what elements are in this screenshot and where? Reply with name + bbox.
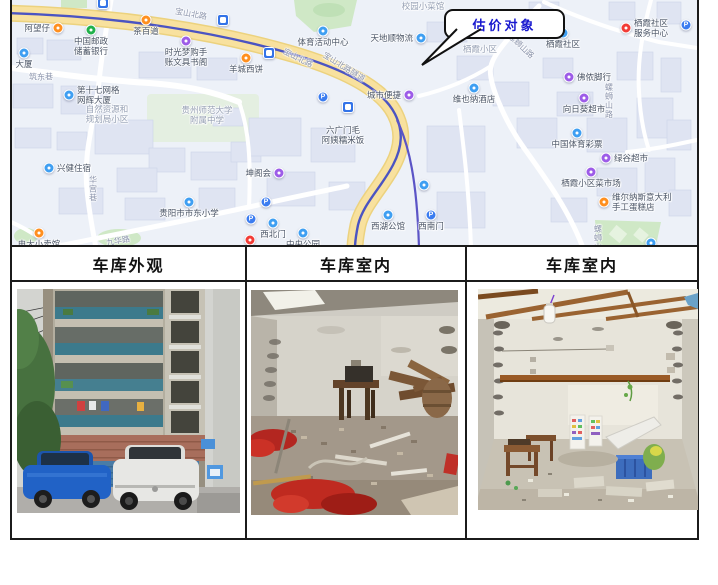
road-label: 九华路 (105, 233, 131, 245)
callout-arrow (411, 28, 491, 73)
table-border-bottom (10, 538, 699, 540)
metro-station-icon (97, 0, 109, 9)
road-label: 华宫巷 (88, 176, 99, 203)
poi-marker-icon (646, 238, 657, 246)
map-poi-label: 绿谷超市 (614, 153, 648, 163)
poi-marker-icon (404, 90, 415, 101)
photo-garage-exterior (17, 289, 240, 513)
poi-marker-icon (318, 26, 329, 37)
map-poi-label: 兴健住宿 (57, 163, 91, 173)
table-border-header-bottom (10, 280, 699, 282)
poi-marker-icon (34, 228, 45, 239)
map-poi-label: 六广门毛阿姨糯米饭 (322, 125, 365, 145)
metro-station-icon (217, 14, 229, 26)
poi-marker-icon (64, 90, 75, 101)
map-poi-label: 中国邮政储蓄银行 (74, 36, 108, 56)
garage-interior-2-graphic (478, 289, 698, 510)
poi-marker-icon (469, 83, 480, 94)
map-poi-label: 城市便捷 (367, 90, 401, 100)
parking-icon: P (681, 20, 692, 31)
map-poi-label: 西南门 (418, 221, 444, 231)
header-garage-interior-2: 车库室内 (467, 247, 697, 280)
map-poi-label: 坤阁会 (245, 168, 271, 178)
map-poi-label: 天地顺物流 (370, 33, 413, 43)
garage-interior-1-graphic (251, 290, 458, 515)
poi-marker-icon (184, 197, 195, 208)
poi-marker-icon (19, 48, 30, 59)
road-label: 宝山北路 (281, 46, 315, 70)
map-poi-label: 茶百道 (133, 26, 159, 36)
road-label: 螺蛳山 (593, 225, 604, 246)
metro-station-icon (342, 101, 354, 113)
poi-marker-icon (141, 15, 152, 26)
table-col-separator-1 (245, 245, 247, 540)
road-label: 宝山北路 (174, 6, 207, 22)
road-label: 螺蛳山路 (604, 83, 615, 119)
parking-icon: P (246, 214, 257, 225)
map-poi-label: 羊城西饼 (229, 64, 263, 74)
map-poi-label: 第十七网格网辉大厦 (77, 85, 120, 105)
poi-marker-icon (268, 218, 279, 229)
map-poi-label: 贵州师范大学附属中学 (181, 105, 232, 125)
poi-marker-icon (586, 167, 597, 178)
poi-marker-icon (383, 210, 394, 221)
map-poi-label: 自然资源和规划局小区 (86, 104, 129, 124)
poi-marker-icon (274, 168, 285, 179)
photo-garage-interior-1 (251, 290, 458, 515)
table-col-separator-2 (465, 245, 467, 540)
poi-marker-icon (53, 23, 64, 34)
metro-station-icon (263, 47, 275, 59)
poi-marker-icon (599, 197, 610, 208)
map-poi-label: 西北门 (260, 229, 286, 239)
map-poi-label: 贵阳市市东小学 (159, 208, 219, 218)
map-poi-label: 向日葵超市 (563, 104, 606, 114)
map-poi-label: 校园小菜馆 (402, 1, 445, 11)
parking-icon: P (261, 197, 272, 208)
map-poi-label: 栖霞小区菜市场 (561, 178, 621, 188)
poi-marker-icon (579, 93, 590, 104)
header-garage-interior-1: 车库室内 (247, 247, 465, 280)
poi-marker-icon (572, 128, 583, 139)
road-label: 宝山北路隧道 (321, 50, 368, 85)
map-poi-label: 佛侬脚行 (577, 72, 611, 82)
map-poi-label: 体育活动中心 (297, 37, 348, 47)
poi-marker-icon (245, 235, 256, 246)
map-poi-label: 大厦 (15, 59, 32, 69)
map-poi-label: 栖霞社区服务中心 (634, 18, 668, 38)
map-poi-label: 维尔纳斯意大利手工蛋糕店 (612, 192, 672, 212)
map-poi-label: 时光梦购手账文具书阁 (165, 47, 208, 67)
poi-marker-icon (44, 163, 55, 174)
map-poi-layer: 阿望仔中国邮政储蓄银行茶百道时光梦购手账文具书阁羊城西饼体育活动中心天地顺物流校… (11, 0, 698, 245)
map-poi-label: 栖霞社区 (546, 39, 580, 49)
parking-icon: P (426, 210, 437, 221)
garage-exterior-graphic (17, 289, 240, 513)
poi-marker-icon (621, 23, 632, 34)
poi-marker-icon (419, 180, 430, 191)
poi-marker-icon (181, 36, 192, 47)
map-poi-label: 中国体育彩票 (551, 139, 602, 149)
poi-marker-icon (601, 153, 612, 164)
map-poi-label: 维也纳酒店 (453, 94, 496, 104)
map-poi-label: 西湖公馆 (371, 221, 405, 231)
poi-marker-icon (241, 53, 252, 64)
header-garage-exterior: 车库外观 (12, 247, 245, 280)
poi-marker-icon (86, 25, 97, 36)
location-map: 阿望仔中国邮政储蓄银行茶百道时光梦购手账文具书阁羊城西饼体育活动中心天地顺物流校… (11, 0, 698, 245)
map-poi-label: 阿望仔 (24, 23, 50, 33)
poi-marker-icon (298, 228, 309, 239)
poi-marker-icon (564, 72, 575, 83)
road-label: 筑东巷 (29, 72, 53, 83)
parking-icon: P (318, 92, 329, 103)
appraisal-report-page: 阿望仔中国邮政储蓄银行茶百道时光梦购手账文具书阁羊城西饼体育活动中心天地顺物流校… (0, 0, 718, 585)
photo-garage-interior-2 (478, 289, 698, 510)
